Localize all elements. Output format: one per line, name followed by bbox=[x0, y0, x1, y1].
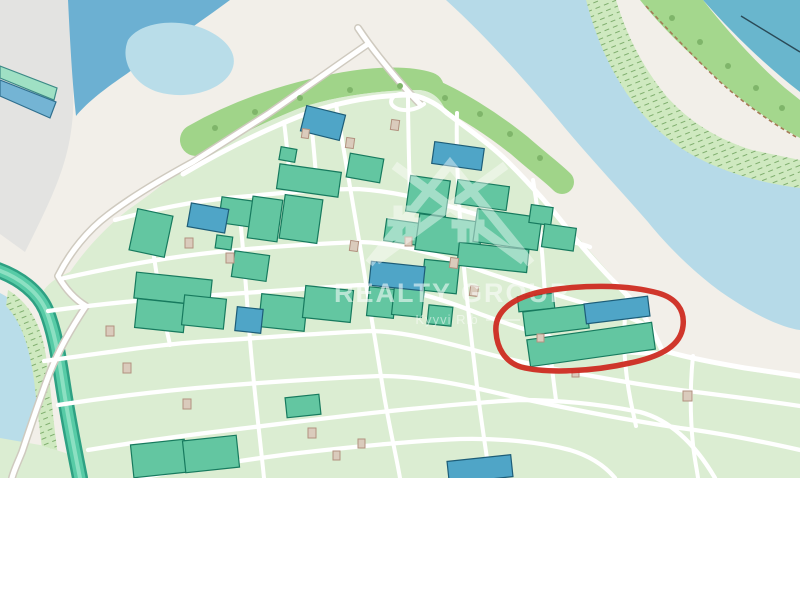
map-screenshot: REALTY GROUP Kyyvi Rib bbox=[0, 0, 800, 600]
watermark-subtitle: Kyyvi Rib bbox=[415, 312, 478, 327]
empty-white-area bbox=[0, 478, 800, 600]
map-canvas[interactable]: REALTY GROUP Kyyvi Rib bbox=[0, 0, 800, 478]
